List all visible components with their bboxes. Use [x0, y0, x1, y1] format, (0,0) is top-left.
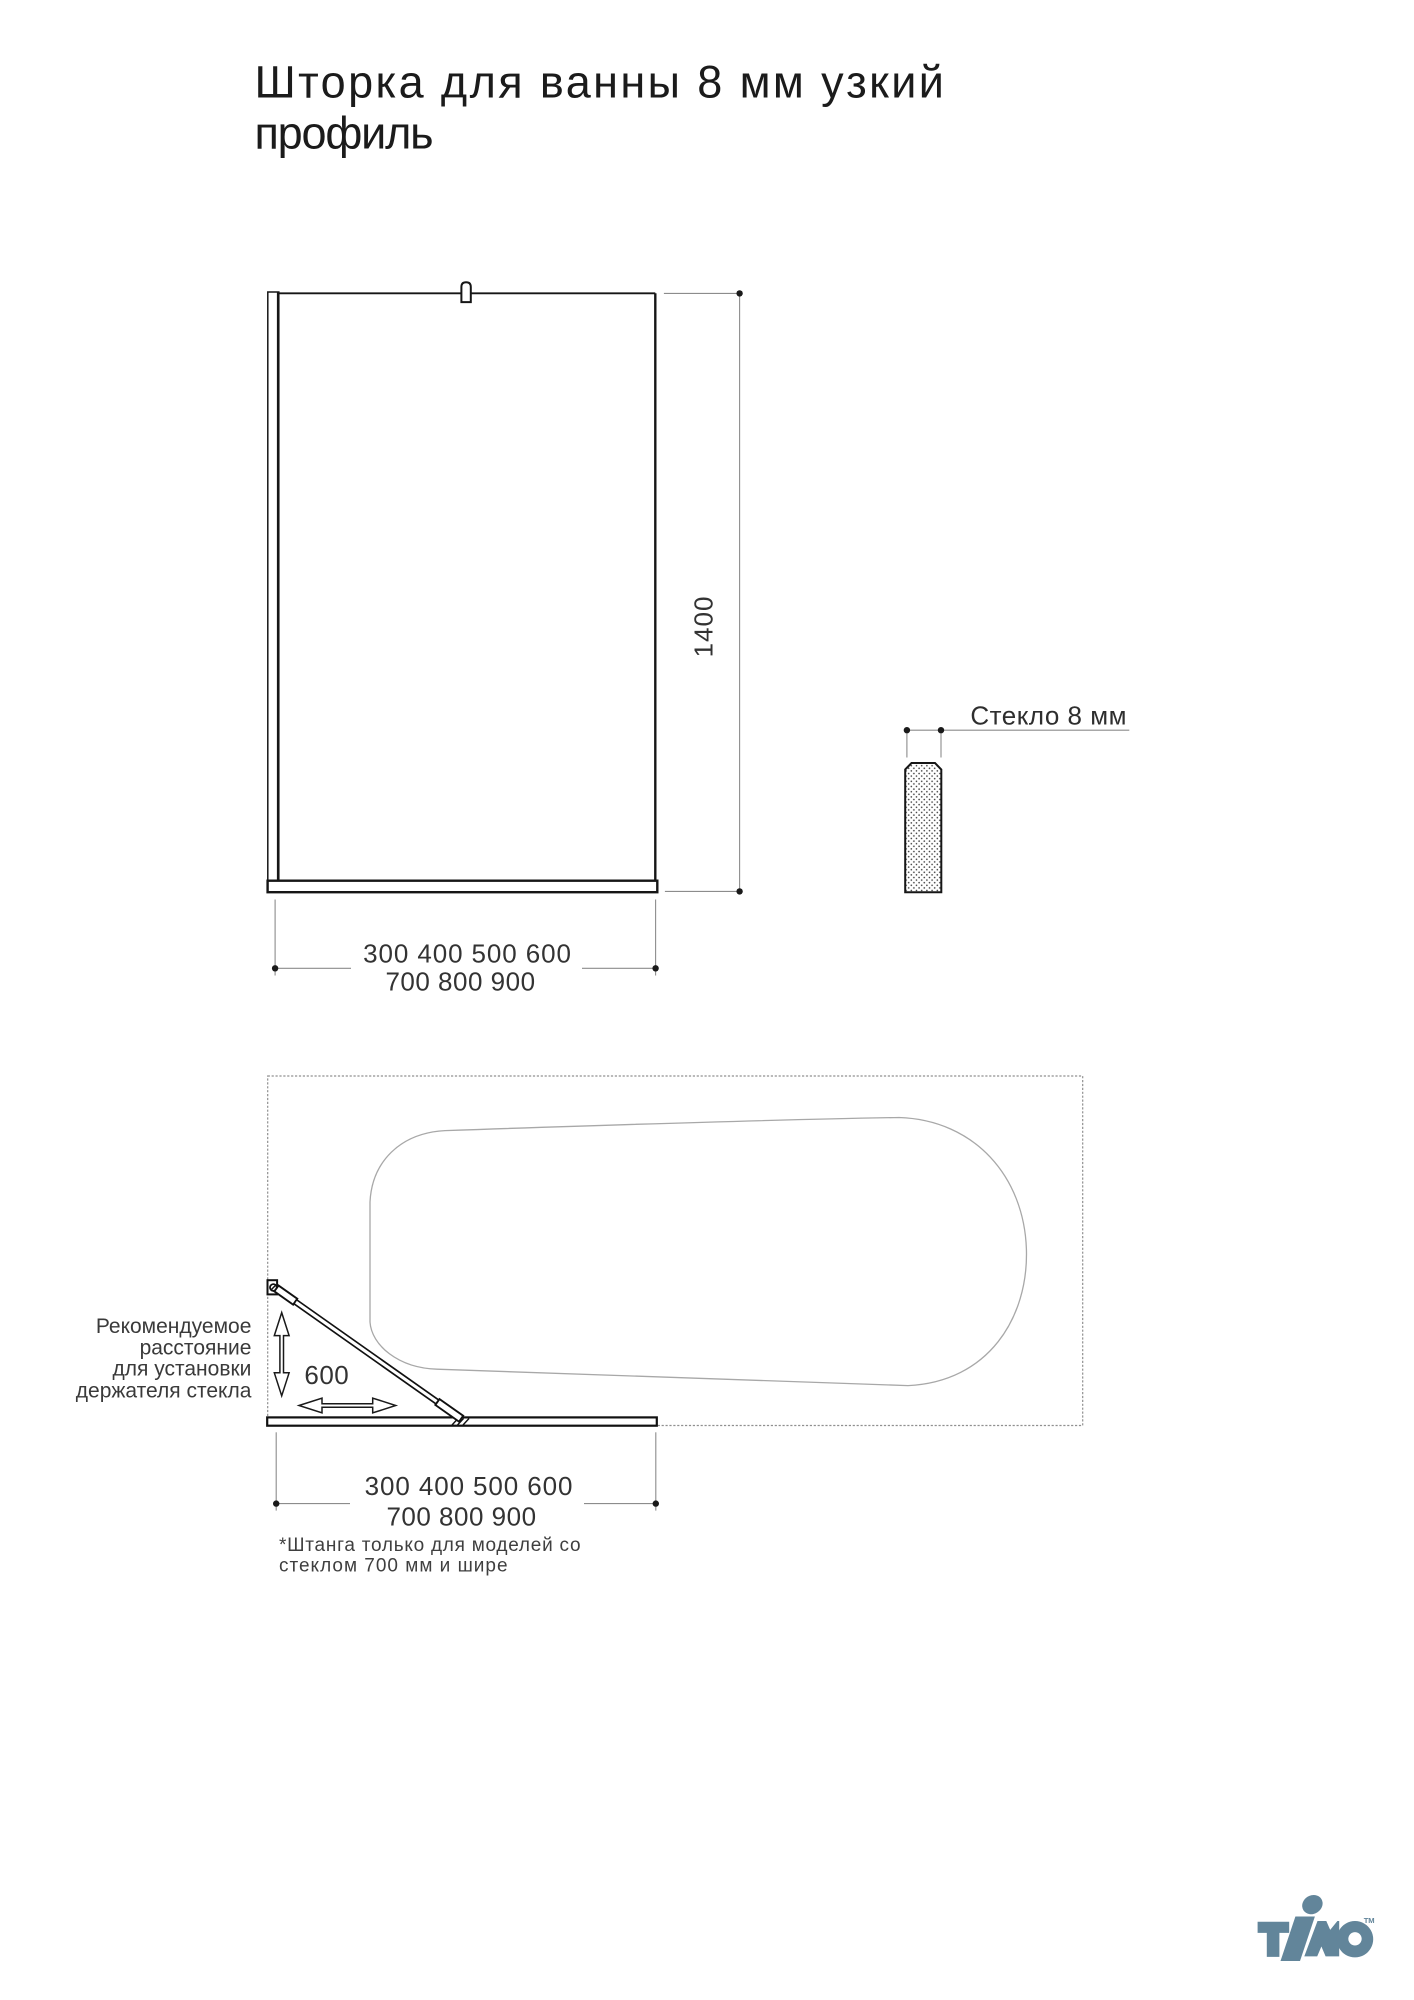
svg-text:600: 600	[304, 1360, 349, 1390]
svg-text:Рекомендуемое: Рекомендуемое	[96, 1315, 252, 1338]
svg-text:700 800 900: 700 800 900	[385, 967, 535, 997]
svg-text:для установки: для установки	[113, 1357, 252, 1380]
svg-text:расстояние: расстояние	[140, 1336, 252, 1359]
svg-text:1400: 1400	[688, 596, 718, 658]
svg-text:*Штанга только для моделей со: *Штанга только для моделей со	[279, 1535, 581, 1556]
svg-text:держателя стекла: держателя стекла	[76, 1380, 252, 1403]
svg-text:300 400 500 600: 300 400 500 600	[363, 938, 572, 968]
svg-text:Шторка для ванны 8 мм узкий: Шторка для ванны 8 мм узкий	[255, 57, 947, 108]
svg-text:300 400 500 600: 300 400 500 600	[365, 1471, 574, 1501]
svg-text:TM: TM	[1364, 1916, 1375, 1925]
svg-text:стеклом 700 мм и шире: стеклом 700 мм и шире	[279, 1556, 509, 1577]
svg-text:700 800 900: 700 800 900	[386, 1502, 536, 1532]
svg-text:профиль: профиль	[255, 107, 433, 158]
svg-text:Стекло 8 мм: Стекло 8 мм	[970, 701, 1127, 731]
